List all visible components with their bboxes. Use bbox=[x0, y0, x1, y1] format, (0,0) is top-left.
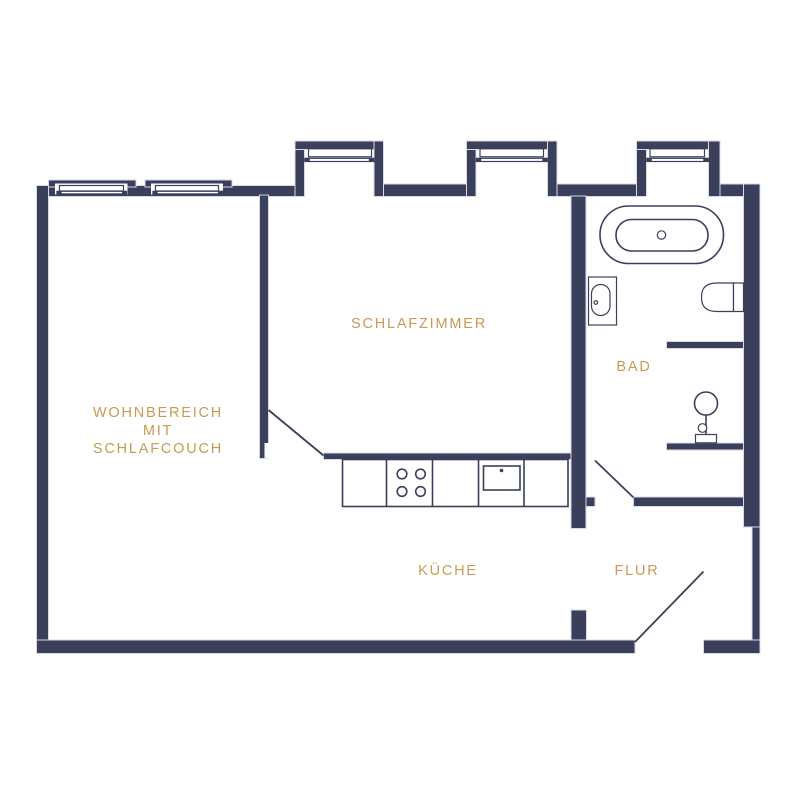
window-living-1 bbox=[55, 184, 128, 195]
wall-top-seg-1 bbox=[384, 184, 467, 197]
wall-right-lower bbox=[752, 527, 760, 654]
label-wohnbereich-line2: MIT bbox=[143, 423, 173, 439]
washbasin bbox=[589, 277, 617, 325]
label-kueche: KÜCHE bbox=[418, 561, 478, 579]
pedestal-stand bbox=[695, 392, 718, 443]
counter-outline bbox=[343, 460, 569, 507]
bathtub bbox=[600, 206, 724, 264]
floor-plan-drawing: WOHNBEREICH MIT SCHLAFCOUCH SCHLAFZIMMER… bbox=[0, 0, 800, 800]
doors bbox=[269, 410, 704, 642]
door-bath-leaf bbox=[595, 461, 634, 498]
door-kitchen-leaf bbox=[269, 410, 324, 456]
bay2-right-wall bbox=[548, 141, 558, 197]
wall-bath-stub-upper bbox=[667, 342, 744, 349]
wall-hall-stub bbox=[571, 610, 587, 640]
window-living-2 bbox=[151, 184, 223, 195]
bath-bay-right-wall bbox=[709, 141, 721, 197]
floor-plan: WOHNBEREICH MIT SCHLAFCOUCH SCHLAFZIMMER… bbox=[0, 0, 800, 800]
wall-top-seg-2 bbox=[557, 184, 637, 197]
door-jamb-recess bbox=[265, 443, 270, 458]
wall-right-upper bbox=[744, 184, 761, 527]
faucet-dot bbox=[500, 469, 504, 473]
window-bath bbox=[647, 149, 709, 162]
wall-bath-bottom bbox=[634, 497, 744, 507]
wall-bedroom-kitchen bbox=[324, 453, 572, 460]
bathroom-fixtures bbox=[589, 206, 744, 443]
wall-left-exterior bbox=[37, 186, 49, 654]
kitchen-counter bbox=[343, 460, 569, 507]
toilet bbox=[702, 283, 744, 312]
bay1-right-wall bbox=[374, 141, 384, 197]
wall-living-bedroom bbox=[260, 195, 269, 459]
wall-bath-jamb-nub bbox=[586, 497, 595, 507]
label-bad: BAD bbox=[616, 359, 651, 375]
label-schlafzimmer: SCHLAFZIMMER bbox=[351, 316, 487, 332]
kitchen-sink bbox=[484, 466, 521, 490]
wall-kitchen-bath bbox=[571, 196, 586, 529]
wall-bottom-right bbox=[704, 640, 761, 654]
wall-bottom-main bbox=[37, 640, 636, 654]
door-entrance-leaf bbox=[635, 572, 704, 643]
window-bedroom-1 bbox=[305, 149, 374, 162]
wall-bath-stub-lower bbox=[667, 443, 744, 450]
label-flur: FLUR bbox=[614, 563, 659, 579]
window-bedroom-2 bbox=[476, 149, 547, 162]
label-wohnbereich-line3: SCHLAFCOUCH bbox=[93, 441, 223, 457]
label-wohnbereich-line1: WOHNBEREICH bbox=[93, 405, 223, 421]
